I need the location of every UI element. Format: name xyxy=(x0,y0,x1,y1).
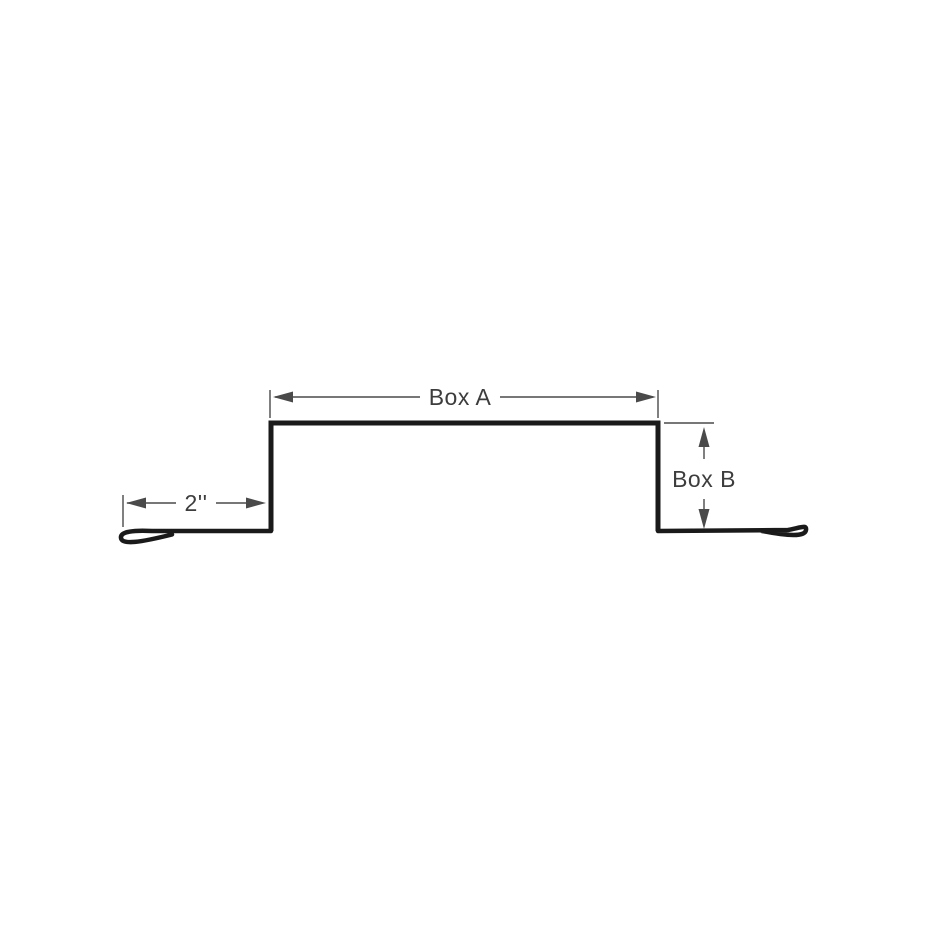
box-b-label: Box B xyxy=(672,466,736,492)
flange-arrowhead-left-icon xyxy=(126,498,146,509)
flange-arrowhead-right-icon xyxy=(246,498,266,509)
profile-right-flange-hem xyxy=(658,527,806,535)
box-a-label: Box A xyxy=(429,384,492,410)
box-b-arrowhead-up-icon xyxy=(699,427,710,447)
flange-width-label: 2'' xyxy=(184,490,207,516)
profile-drawing: Box A 2'' Box B xyxy=(0,0,930,931)
box-a-arrowhead-right-icon xyxy=(636,392,656,403)
box-a-arrowhead-left-icon xyxy=(273,392,293,403)
profile-center-outline xyxy=(271,423,658,531)
diagram-canvas: Box A 2'' Box B xyxy=(0,0,930,931)
profile-left-flange-hem xyxy=(121,531,271,542)
box-b-arrowhead-down-icon xyxy=(699,509,710,529)
